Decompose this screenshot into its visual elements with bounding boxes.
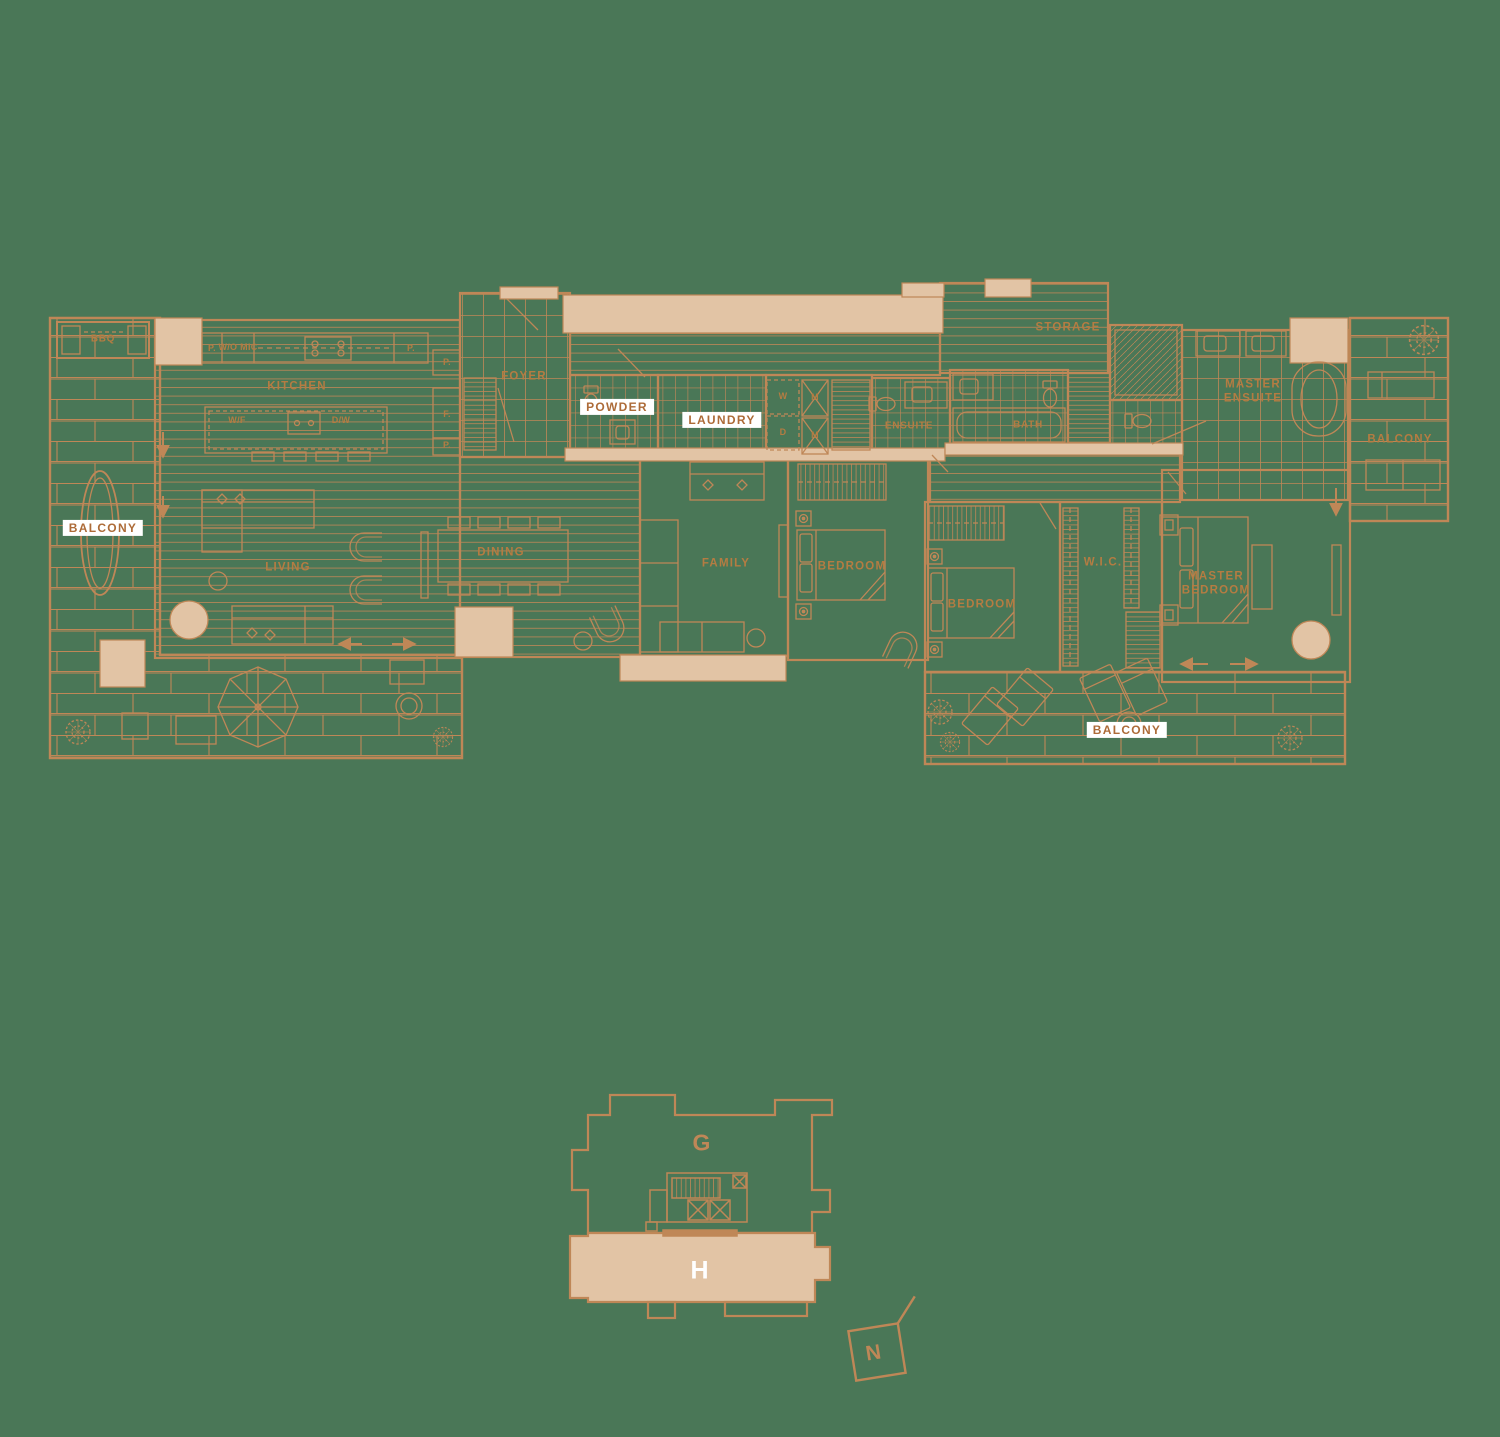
keyplan-unit-g-outline: [572, 1095, 832, 1233]
floorplan-drawing: [0, 0, 1500, 1437]
dishwasher-label: D/W: [332, 416, 350, 426]
corridor-bed-floor: [930, 454, 1180, 502]
pantry-label-1: P.: [208, 344, 216, 354]
wic-fixtures: [1063, 508, 1160, 668]
wall-oven-micro-label: W/O MIC: [218, 342, 258, 352]
bbq-label: BBQ: [91, 334, 115, 345]
keyplan-unit-g-label: G: [693, 1130, 712, 1155]
keyplan-core: [646, 1173, 747, 1236]
wine-fridge-label: W/F: [228, 416, 245, 426]
family-label: FAMILY: [702, 558, 750, 571]
kitchen-label: KITCHEN: [267, 381, 327, 394]
north-arrow: [845, 1296, 927, 1380]
storage-label: STORAGE: [1035, 322, 1100, 335]
corridor-top-floor: [570, 333, 940, 375]
balcony-left-label: BALCONY: [63, 520, 143, 536]
wc-floor: [1110, 400, 1182, 444]
linen-closet: [1068, 373, 1110, 445]
laundry-label: LAUNDRY: [682, 412, 761, 428]
fridge-label: F.: [443, 410, 451, 420]
powder-label: POWDER: [580, 399, 654, 415]
ensuite-label: ENSUITE: [885, 421, 933, 432]
bedroom2-label: BEDROOM: [948, 599, 1016, 612]
keyplan-unit-h-label: H: [690, 1257, 709, 1285]
ensuite-floor: [872, 378, 950, 454]
bedroom1-label: BEDROOM: [818, 561, 886, 574]
north-label: N: [864, 1340, 884, 1365]
keyplan-tab-2: [725, 1302, 807, 1316]
balcony-right-label: BALCONY: [1367, 434, 1432, 447]
keyplan: [570, 1095, 926, 1381]
mech-label-2: M: [811, 431, 819, 441]
dining-label: DINING: [477, 547, 524, 560]
keyplan-tab-1: [648, 1302, 675, 1318]
living-label: LIVING: [265, 562, 311, 575]
master-ensuite-label: MASTER ENSUITE: [1215, 378, 1291, 407]
floor-surfaces: [155, 283, 1350, 682]
balcony-bottom-label: BALCONY: [1087, 722, 1167, 738]
wic-label: W.I.C.: [1084, 557, 1123, 570]
bottom-balcony: [925, 672, 1345, 764]
pantry-label-3: P.: [443, 358, 451, 368]
pantry-label-2: P.: [407, 344, 415, 354]
master-shower: [1110, 325, 1182, 400]
mech-label-1: M: [811, 393, 819, 403]
umbrella: [218, 667, 298, 747]
bath-label: BATH: [1013, 420, 1043, 431]
foyer-label: FOYER: [501, 371, 547, 384]
floorplan-canvas: BBQ P. W/O MIC P. KITCHEN P. F. P. W/F D…: [0, 0, 1500, 1437]
pantry-label-4: P.: [443, 441, 451, 451]
dryer-label: D: [780, 428, 787, 438]
bedroom2-furniture: [927, 503, 1056, 657]
washer-label: W: [779, 392, 788, 402]
master-bedroom-label: MASTER BEDROOM: [1173, 570, 1259, 599]
